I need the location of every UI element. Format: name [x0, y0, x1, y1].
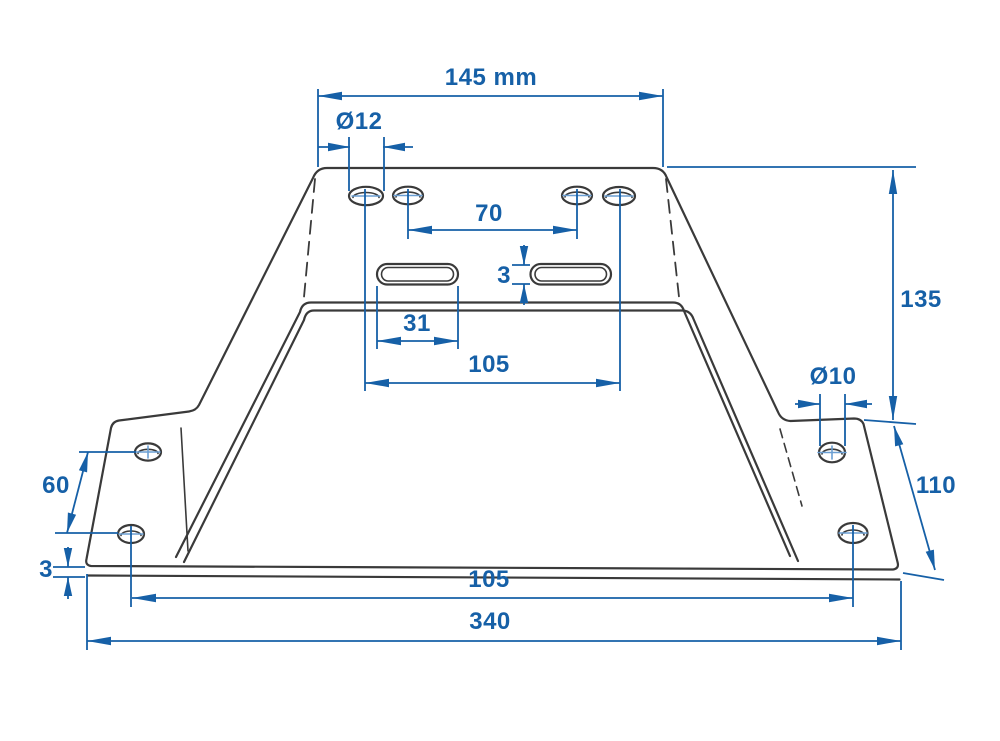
dim-label-overall-width: 340	[469, 610, 511, 634]
dim-label-top-hole-outer-spacing: 105	[468, 353, 510, 377]
dim-label-slot-length: 31	[403, 312, 431, 336]
step-lower-and-inner-legs	[184, 311, 798, 563]
left-wing-fold-line	[181, 428, 188, 551]
slot-right-depth	[535, 268, 607, 282]
dim-label-wing-hole-spacing: 60	[42, 474, 70, 498]
dim-label-wing-length: 110	[916, 474, 956, 498]
dim-label-top-hole-diameter: Ø12	[336, 110, 383, 134]
slot-left-depth	[382, 268, 454, 282]
dim-label-bottom-hole-spacing: 105	[468, 568, 510, 592]
dim-label-slot-height: 3	[497, 264, 511, 288]
right-wing-fold-dashed-line	[780, 429, 802, 506]
step-upper-and-inner-legs	[176, 303, 790, 558]
dim-label-top-width: 145 mm	[445, 66, 537, 90]
dim-label-top-hole-inner-spacing: 70	[475, 202, 503, 226]
dim-label-wing-hole-diameter: Ø10	[810, 365, 857, 389]
bracket-dimension-drawing: 145 mm Ø12 70 3 31 105 135 Ø10 110 60 3 …	[0, 0, 1000, 741]
left-bend-dashed-line	[304, 179, 315, 297]
dim-label-material-thickness: 3	[39, 558, 53, 582]
dim-label-overall-height: 135	[900, 288, 942, 312]
